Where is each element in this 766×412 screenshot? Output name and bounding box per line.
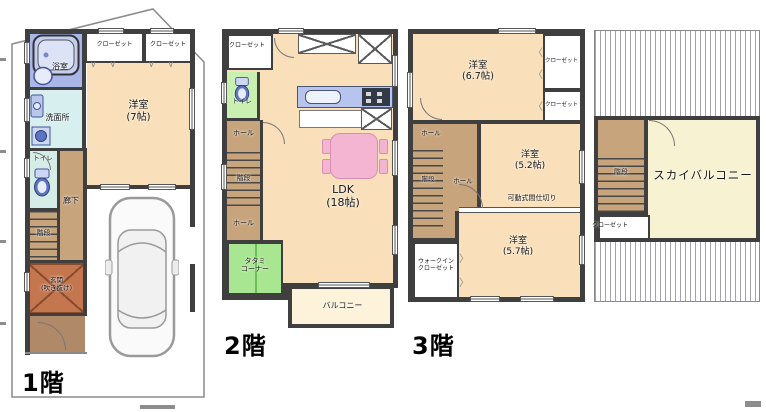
edge-mark (0, 240, 6, 243)
wall (644, 120, 648, 216)
edge-mark (0, 150, 6, 153)
edge-mark (745, 401, 761, 407)
stairs-treads-roof (598, 158, 644, 214)
roof-plan: 階段 クローゼット スカイバルコニー (0, 0, 766, 412)
edge-mark (0, 322, 6, 325)
edge-mark (140, 405, 175, 409)
label-sky-balcony: スカイバルコニー (650, 169, 756, 183)
edge-mark (0, 58, 6, 61)
floorplan-canvas: ∨ ∨ ∨ ∨ 浴室 クローゼット クローゼット 洋室 (7帖) 洗面所 トイレ… (0, 0, 766, 412)
label-closet-roof: クローゼット (592, 222, 628, 229)
label-stairs-roof: 階段 (600, 168, 642, 176)
